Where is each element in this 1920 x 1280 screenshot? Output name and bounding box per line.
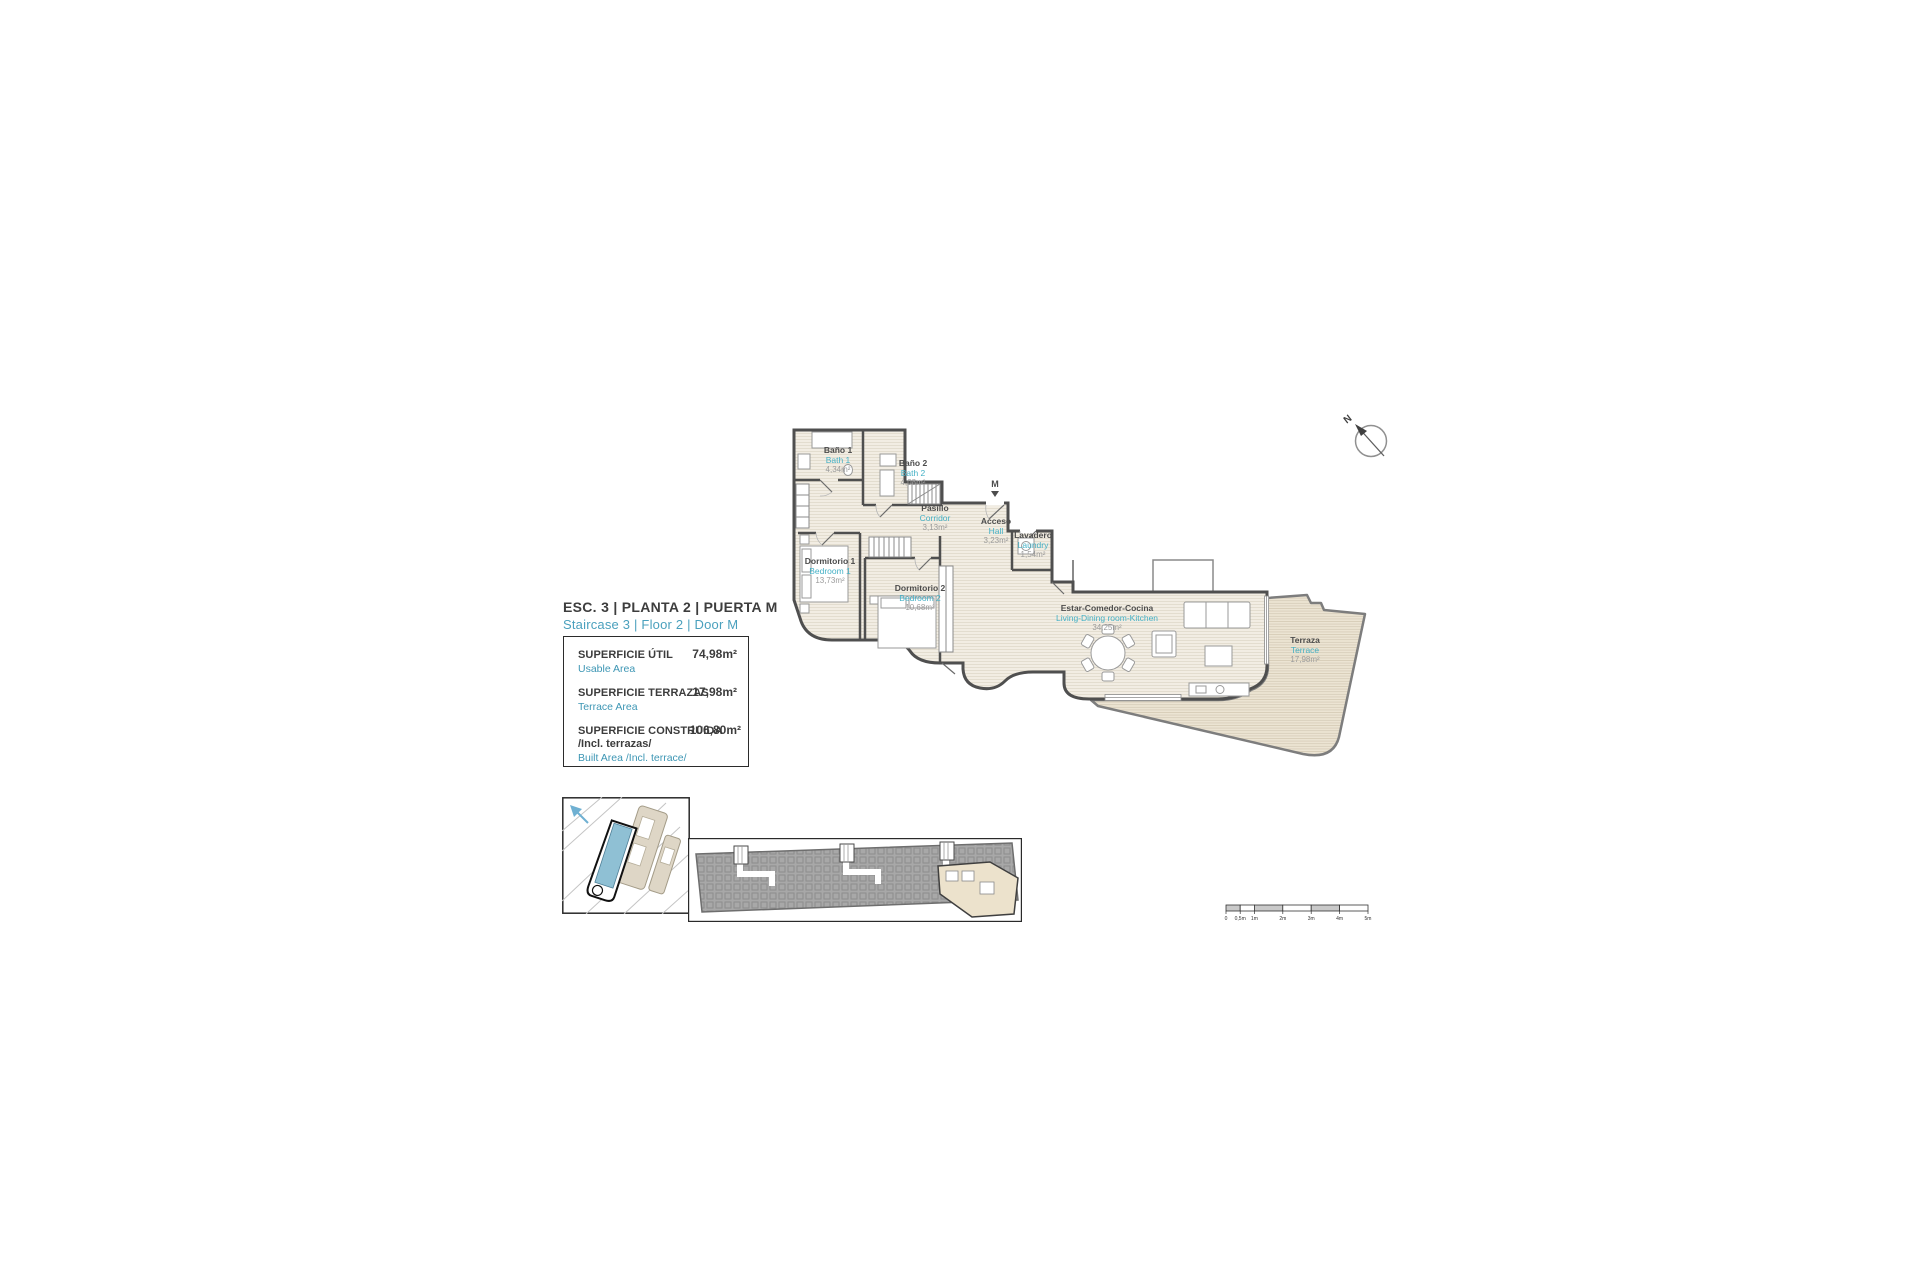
scale-label-1: 1m <box>1251 916 1258 922</box>
built-area-value: 106,80m² <box>690 723 741 737</box>
built-area-row: SUPERFICIE CONSTRUIDA /Incl. terrazas/ B… <box>578 725 735 764</box>
plan-sheet: ESC. 3 | PLANTA 2 | PUERTA M Staircase 3… <box>0 0 1920 1280</box>
usable-area-label-en: Usable Area <box>578 663 735 675</box>
north-arrow: N <box>1336 404 1402 470</box>
site-plan <box>562 797 690 914</box>
room-label-terrace: Terraza Terrace 17,98m² <box>1290 636 1320 664</box>
room-label-bedroom2: Dormitorio 2 Bedroom 2 10,68m² <box>895 584 946 612</box>
usable-area-value: 74,98m² <box>692 647 737 661</box>
terrace-area-label-en: Terrace Area <box>578 701 735 713</box>
scale-bar: 0 0,5m 1m 2m 3m 4m 5m <box>1222 900 1378 928</box>
areas-box: SUPERFICIE ÚTIL Usable Area 74,98m² SUPE… <box>563 636 749 767</box>
scale-label-5: 5m <box>1365 916 1372 922</box>
plan-labels: Baño 1 Bath 1 4,34m² Baño 2 Bath 2 4,08m… <box>790 420 1430 790</box>
entrance-arrow-icon <box>991 491 999 497</box>
scale-label-0: 0 <box>1225 916 1228 922</box>
page-subtitle: Staircase 3 | Floor 2 | Door M <box>563 617 778 632</box>
page-title: ESC. 3 | PLANTA 2 | PUERTA M <box>563 599 778 615</box>
scale-label-2: 2m <box>1279 916 1286 922</box>
scale-label-3: 3m <box>1308 916 1315 922</box>
room-label-living: Estar-Comedor-Cocina Living-Dining room-… <box>1056 604 1158 632</box>
terrace-area-value: 17,98m² <box>692 685 737 699</box>
room-label-bath1: Baño 1 Bath 1 4,34m² <box>824 446 852 474</box>
terrace-area-row: SUPERFICIE TERRAZAS Terrace Area 17,98m² <box>578 687 735 713</box>
scale-label-05: 0,5m <box>1235 916 1246 922</box>
room-label-laundry: Lavadero Laundry 1,54m² <box>1014 531 1052 559</box>
room-label-hall: Acceso Hall 3,23m² <box>981 517 1011 545</box>
entrance-door-label: M <box>991 480 999 489</box>
built-area-label-2: /Incl. terrazas/ <box>578 738 735 750</box>
floor-plan: Baño 1 Bath 1 4,34m² Baño 2 Bath 2 4,08m… <box>790 420 1430 790</box>
north-label: N <box>1342 413 1354 426</box>
built-area-label-en: Built Area /Incl. terrace/ <box>578 752 735 764</box>
key-plan <box>688 838 1022 922</box>
room-label-bath2: Baño 2 Bath 2 4,08m² <box>899 459 927 487</box>
scale-label-4: 4m <box>1336 916 1343 922</box>
entrance-marker: M <box>991 480 999 497</box>
title-block: ESC. 3 | PLANTA 2 | PUERTA M Staircase 3… <box>563 599 778 632</box>
room-label-corridor: Pasillo Corridor 3,13m² <box>920 504 951 532</box>
room-label-bedroom1: Dormitorio 1 Bedroom 1 13,73m² <box>805 557 856 585</box>
usable-area-row: SUPERFICIE ÚTIL Usable Area 74,98m² <box>578 649 735 675</box>
